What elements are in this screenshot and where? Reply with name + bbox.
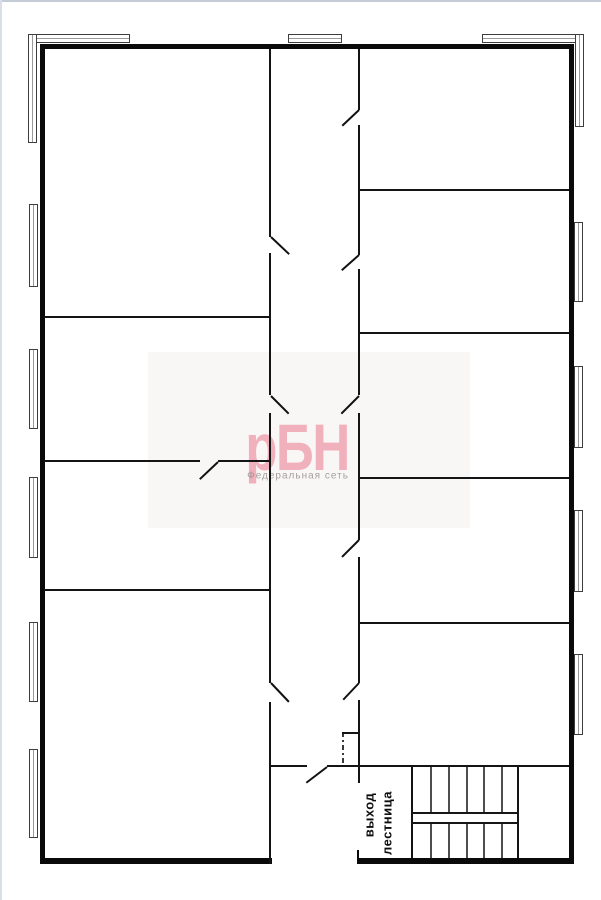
window-edge-top <box>0 0 601 2</box>
interior-wall-segment <box>358 557 360 683</box>
interior-wall-segment <box>358 700 360 783</box>
interior-wall-segment <box>218 460 269 462</box>
door-leaf <box>305 766 327 784</box>
window-symbol <box>574 366 583 448</box>
stairs-label: лестница <box>380 791 395 855</box>
interior-wall-segment <box>360 332 569 334</box>
watermark-subtitle: Федеральная сеть <box>247 471 349 482</box>
interior-wall-segment <box>360 622 569 624</box>
door-leaf <box>342 682 359 700</box>
window-symbol <box>28 34 130 43</box>
window-symbol <box>574 654 583 735</box>
window-symbol <box>29 204 38 287</box>
outer-wall-segment <box>357 850 359 858</box>
interior-wall-segment <box>44 460 200 462</box>
interior-wall-segment <box>517 766 519 858</box>
interior-wall-segment <box>358 49 360 110</box>
door-leaf <box>270 236 289 254</box>
window-symbol <box>29 349 38 429</box>
outer-wall-segment <box>40 44 45 864</box>
window-symbol <box>574 222 583 302</box>
door-leaf <box>270 682 289 702</box>
interior-wall-segment <box>44 589 269 591</box>
interior-wall-segment <box>269 702 271 864</box>
interior-wall-segment <box>360 477 569 479</box>
window-symbol <box>29 749 38 838</box>
window-symbol <box>482 34 584 43</box>
window-symbol <box>29 622 38 702</box>
interior-wall-segment <box>271 765 307 767</box>
interior-wall-segment <box>269 253 271 395</box>
outer-wall-segment <box>40 858 272 864</box>
staircase <box>413 766 517 858</box>
interior-wall-segment <box>342 732 359 734</box>
window-edge-left <box>0 0 2 900</box>
duct-dashdot-line <box>342 732 344 766</box>
door-leaf <box>341 109 359 126</box>
window-symbol <box>574 510 583 592</box>
window-symbol <box>575 34 584 127</box>
stair-landing <box>411 812 519 824</box>
door-leaf <box>341 539 359 557</box>
interior-wall-segment <box>360 189 569 191</box>
door-leaf <box>341 254 359 270</box>
outer-wall-segment <box>569 44 574 864</box>
window-symbol <box>29 477 38 558</box>
window-symbol <box>288 34 342 43</box>
outer-wall-segment <box>41 44 574 49</box>
outer-wall-segment <box>357 858 574 864</box>
exit-label: выход <box>362 793 377 838</box>
interior-wall-segment <box>269 413 271 683</box>
interior-wall-segment <box>269 49 271 237</box>
interior-wall-segment <box>411 766 413 858</box>
interior-wall-segment <box>44 316 269 318</box>
floor-plan: рБН Федеральная сеть выход лестница <box>0 0 601 900</box>
window-symbol <box>28 34 37 143</box>
interior-wall-segment <box>327 765 569 767</box>
